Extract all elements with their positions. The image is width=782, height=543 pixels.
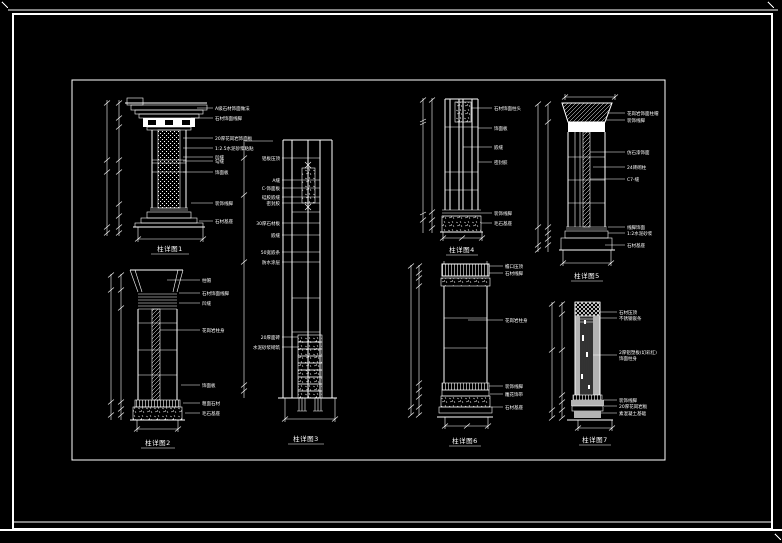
annotation-label: 石材饰面线脚 [215,115,242,122]
annotation-label: 石材饰面线脚 [202,290,229,297]
annotation-label: 装饰线脚 [627,117,645,124]
annotation-label: 毛石基座 [202,410,220,417]
annotation-label: 勾缝 [215,158,224,165]
annotation-label: C-饰面板 [262,185,281,192]
column-detail-2: 柱帽 石材饰面线脚 凹缝 花岗岩柱身 饰面板 粗面石材 毛石基座 柱详图2 [105,262,255,457]
detail-caption: 柱详图5 [574,271,600,280]
detail-caption: 柱详图6 [452,436,478,445]
annotation-label: C7-缝 [627,176,640,183]
annotation-label: 装饰线脚 [215,200,233,207]
annotation-label: 24砖砌柱 [627,164,647,171]
annotation-label: 20厚面砖 [261,334,281,341]
annotation-label: 50宽嵌条 [261,249,281,256]
corner-tick-top-left [2,2,8,8]
annotation-label: 粗面石材 [202,400,220,407]
annotation-label: 花岗岩柱身 [505,317,528,324]
masonry-courses [298,335,322,398]
annotation-label: 仿石漆饰面 [627,149,650,156]
annotation-label: 装饰线脚 [619,397,637,404]
annotation-label: 花岗岩饰面柱帽 [627,110,659,117]
cad-canvas: A级石材饰面做法 石材饰面线脚 20厚花岗岩饰面板 1:2.5水泥砂浆粘贴 凹缝… [0,0,782,543]
annotation-label: 线脚饰面 [627,224,645,231]
annotation-label: 30厚石材板 [256,220,280,227]
annotation-label: 石材压顶 [619,309,637,316]
annotation-label: 石材基座 [215,218,233,225]
annotation-label: 20厚花岗岩板 [619,403,648,410]
annotation-label: 饰面板 [494,125,508,132]
detail-caption: 柱详图4 [449,245,475,254]
column-detail-5: 花岗岩饰面柱帽 装饰线脚 仿石漆饰面 24砖砌柱 C7-缝 线脚饰面 1:2水泥… [535,92,667,292]
annotation-label: 硅胶嵌缝 [262,194,280,201]
annotation-label: 花岗岩柱身 [202,327,225,334]
annotation-label: 装饰线脚 [505,383,523,390]
annotation-label: 1:2水泥砂浆 [627,230,653,237]
annotation-label: 2厚铝塑板(幻彩红) [619,349,657,356]
annotation-label: 饰面板 [215,169,229,176]
annotation-label: 毛石基座 [494,220,512,227]
detail-caption: 柱详图3 [293,434,319,443]
annotation-label: 石材基座 [627,242,645,249]
annotation-label: 水泥砂浆砌筑 [253,344,280,351]
detail-caption: 柱详图7 [582,435,608,444]
annotation-label: 嵌缝 [271,232,280,239]
annotation-label: 嵌缝 [494,144,503,151]
annotation-label: 素混凝土基础 [619,410,646,417]
column-detail-3: 铝板压顶 A缝 C-饰面板 硅胶嵌缝 密封胶 30厚石材板 嵌缝 50宽嵌条 防… [240,136,365,456]
annotation-label: 凹缝 [202,300,211,307]
annotation-label: 饰面柱身 [619,355,637,362]
annotation-label: 柱帽 [202,277,211,284]
annotation-label: 密封胶 [494,159,508,166]
annotation-label: 雕花饰带 [505,391,523,398]
detail-caption: 柱详图2 [145,438,171,447]
annotation-label: 石材饰面柱头 [494,105,521,112]
annotation-label: 装饰线脚 [494,210,512,217]
annotation-label: 防水涂层 [262,259,280,266]
column-detail-4: 石材饰面柱头 饰面板 嵌缝 密封胶 装饰线脚 毛石基座 柱详图4 [415,92,525,267]
corner-tick-bottom-right [775,534,781,540]
annotation-label: 石材线脚 [505,270,523,277]
annotation-label: 石材基座 [505,404,523,411]
dimension-ticks [104,101,122,236]
annotation-label: A级石材饰面做法 [215,105,250,112]
annotation-label: 不锈钢嵌条 [619,315,642,322]
column-detail-7: 石材压顶 不锈钢嵌条 2厚铝塑板(幻彩红) 饰面柱身 装饰线脚 20厚花岗岩板 … [545,290,680,458]
corner-tick-top-right [768,2,774,8]
annotation-label: A缝 [272,177,280,184]
annotation-label: 密封胶 [267,200,281,207]
detail-caption: 柱详图1 [157,244,183,253]
annotation-label: 檐口压顶 [505,263,523,270]
annotation-label: 饰面板 [202,382,216,389]
column-detail-6: 檐口压顶 石材线脚 花岗岩柱身 装饰线脚 雕花饰带 石材基座 柱详图6 [408,260,533,455]
annotation-label: 铝板压顶 [262,155,280,162]
